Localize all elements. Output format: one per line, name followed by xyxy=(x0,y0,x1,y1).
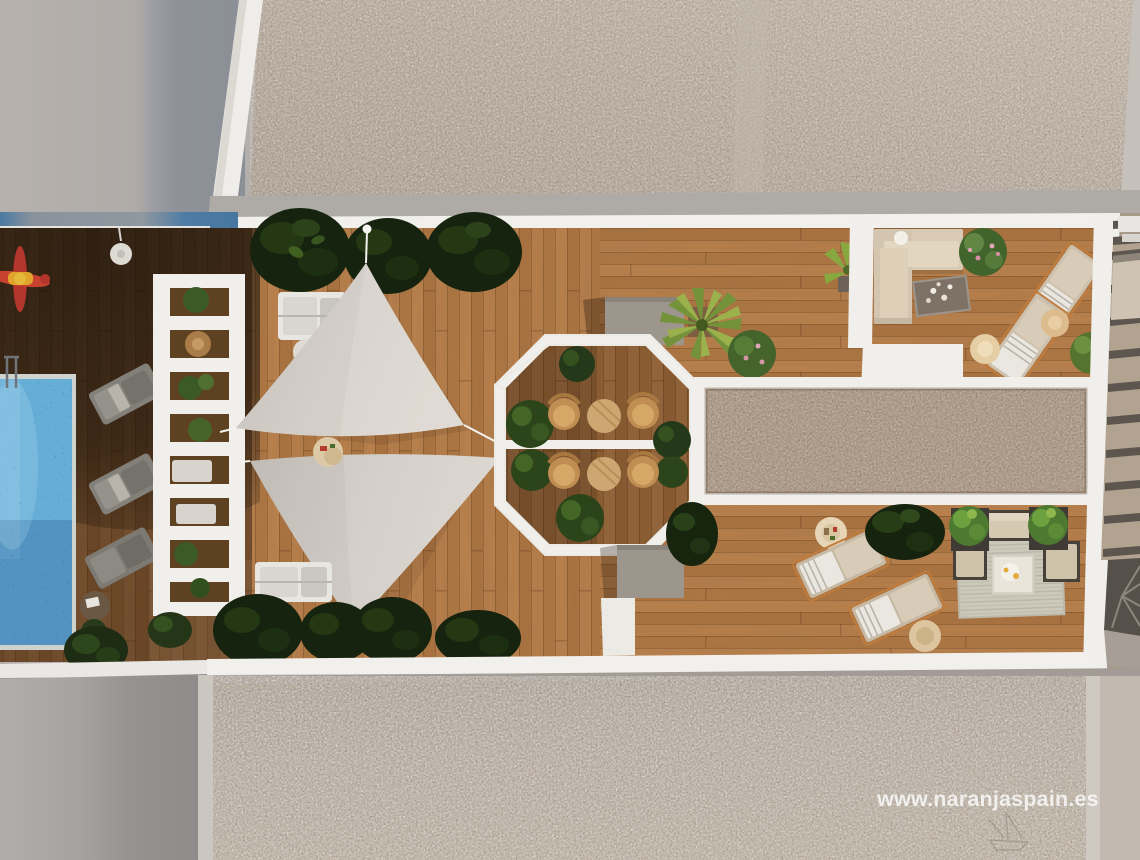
svg-text:www.naranjaspain.es: www.naranjaspain.es xyxy=(876,787,1099,811)
